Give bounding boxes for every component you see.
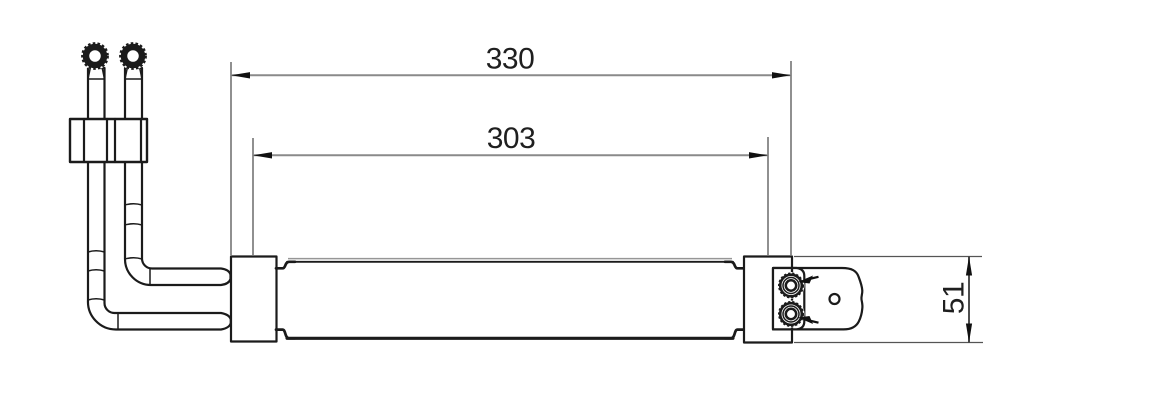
drawing-canvas: 330 303 51 (0, 0, 1160, 412)
pipe-fitting-front (81, 42, 109, 70)
cooler-body (231, 257, 862, 343)
panel-hook-top-left (276, 262, 295, 269)
lower-port (778, 301, 805, 328)
pipe-fitting-rear (119, 42, 147, 70)
panel-hook-bottom-right (725, 330, 744, 339)
core-panel (276, 259, 744, 339)
upper-port (778, 272, 805, 299)
dim-text-51: 51 (938, 282, 971, 314)
dim-arrow-left (231, 72, 250, 78)
pipe-clamp-block (70, 119, 147, 162)
technical-drawing: 330 303 51 (0, 0, 1160, 412)
dim-arrow-right (772, 72, 791, 78)
left-end-block (231, 257, 277, 342)
front-pipe (88, 68, 231, 330)
dim-arrow-bottom (966, 324, 972, 343)
dim-text-303: 303 (487, 122, 536, 155)
dim-arrow-top (966, 257, 972, 276)
pipe-assembly (70, 42, 231, 330)
dim-arrow-right (749, 152, 768, 158)
rear-pipe (125, 68, 231, 285)
bracket-hole (830, 294, 840, 304)
dimension-303: 303 (253, 122, 768, 255)
panel-hook-top-right (725, 262, 744, 269)
dim-arrow-left (253, 152, 272, 158)
dim-text-330: 330 (486, 43, 535, 76)
panel-hook-bottom-left (276, 330, 295, 339)
